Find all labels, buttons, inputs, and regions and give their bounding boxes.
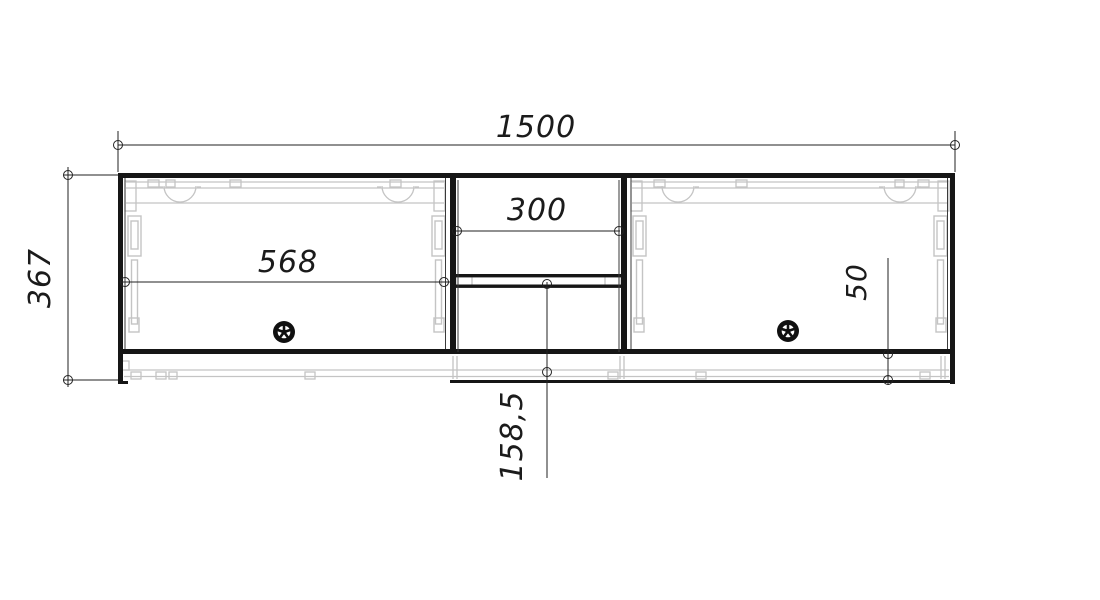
stay-hardware-icon [934,216,947,332]
dimension-overall-height [63,167,118,387]
stay-hardware-icon [633,216,646,332]
niche-lower-height-label: 158,5 [495,391,530,482]
left-door-width-label: 568 [258,245,318,280]
overall-width-label: 1500 [496,110,576,145]
top-panel [118,173,955,178]
divider-left [450,178,456,354]
overall-height-label: 367 [23,248,58,308]
bottom-panel [118,349,955,354]
plinth-rails [120,356,949,379]
dimension-bottom-recess [884,258,893,385]
dimension-niche-lower-height [543,280,552,479]
drawing-canvas: 1500 367 568 300 50 158,5 [0,0,1100,600]
left-foot-stub [118,381,128,384]
stay-hardware-icon [128,216,141,332]
right-cabinet-top-rail [631,180,949,211]
divider-right [621,178,627,354]
lower-panel-edge [450,380,955,383]
technical-drawing: 1500 367 568 300 50 158,5 [0,0,1100,600]
niche-shelf-top-edge [456,274,621,277]
niche-shelf-bottom-edge [456,285,621,288]
left-cabinet-top-rail [125,180,445,211]
knob-icon [273,321,295,343]
niche-width-label: 300 [507,193,567,228]
stay-hardware-icon [432,216,445,332]
knob-icon [777,320,799,342]
bottom-recess-label: 50 [840,263,873,301]
